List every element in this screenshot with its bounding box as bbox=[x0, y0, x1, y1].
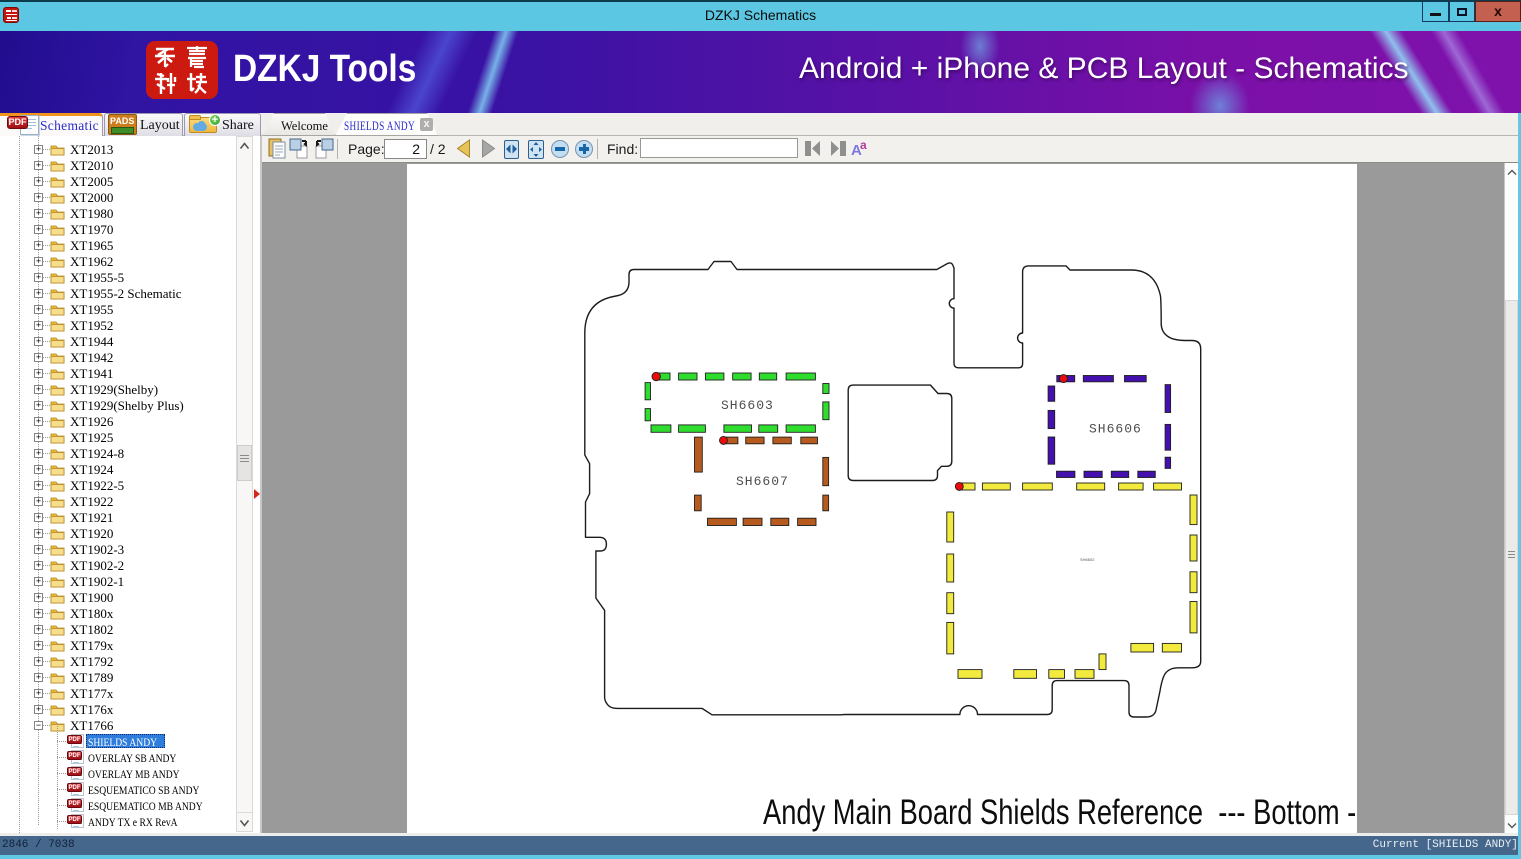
svg-text:SH6602: SH6602 bbox=[1080, 557, 1095, 562]
svg-text:SH6603: SH6603 bbox=[721, 398, 774, 413]
svg-text:SH6606: SH6606 bbox=[1089, 422, 1142, 437]
svg-text:SH6607: SH6607 bbox=[736, 474, 789, 489]
